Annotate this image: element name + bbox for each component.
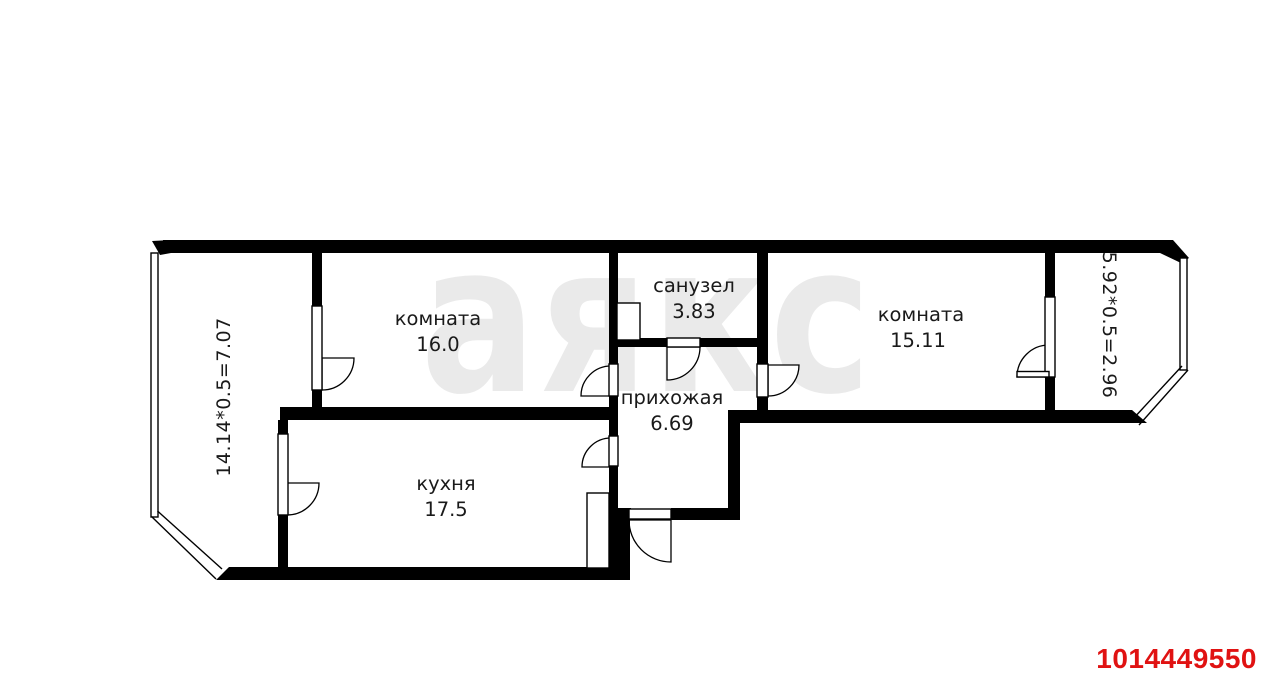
wall-bathroom-east-upper [757,253,768,364]
door-arc-entry [629,520,671,562]
balcony-left-diagonal-inner [158,511,223,569]
wall-room2-east-upper [1045,253,1055,298]
door-leaf-hallway-room2 [757,364,768,397]
wall-room2-bottom [728,410,1132,423]
wall-hallway-west-lower [609,466,618,580]
kitchen-shaft [587,493,609,568]
label-room1-area: 16.0 [416,333,459,356]
wall-room1-left-upper [312,253,322,306]
wall-bathroom-bottom-right [700,338,757,347]
label-hallway-area: 6.69 [650,412,693,435]
balcony-right-wall [1180,258,1187,370]
wall-kitchen-bottom [216,567,630,580]
wall-hallway-east [728,410,740,520]
floor-plan-page: аякс [0,0,1280,677]
door-arc-hallway-kitchen [582,438,611,467]
label-room2-area: 15.11 [890,329,946,352]
wall-hallway-west-mid [609,396,618,437]
label-balcony-left-dimensions: 14.14*0.5=7.07 [213,317,235,476]
balcony-left-diagonal-outer [152,517,217,580]
wall-kitchen-left-upper [278,420,288,434]
bathroom-vent-shaft [617,303,640,340]
wall-room1-kitchen [280,407,618,420]
label-bathroom-area: 3.83 [672,300,715,323]
door-leaf-hallway-kitchen [609,436,618,466]
label-hallway-name: прихожая [621,386,724,409]
wall-room1-left-lower [312,390,322,408]
balcony-right-diagonal-inner [1132,366,1182,420]
wall-hallway-kitchen-connector [618,520,630,580]
label-kitchen-name: кухня [416,472,475,495]
door-swings [287,345,1049,562]
door-arc-room1-balcony [322,358,354,390]
label-kitchen-area: 17.5 [424,498,467,521]
label-bathroom-name: санузел [653,274,735,297]
door-leaf-hallway-room1 [609,364,618,396]
label-room1-name: комната [395,307,481,330]
wall-top [163,240,1165,253]
wall-hallway-bottom-right [671,508,740,520]
wall-kitchen-left-lower [278,515,288,568]
wall-room2-east-lower [1045,377,1055,410]
balcony-left-wall [151,253,158,517]
room-labels: комната 16.0 санузел 3.83 комната 15.11 … [213,252,1120,521]
window-room2-balcony [1045,297,1055,377]
balcony-right-diagonal-outer [1139,370,1188,425]
label-room2-name: комната [878,303,964,326]
door-leaf-bathroom [667,338,700,347]
door-leaf-room2-balcony-open [1017,372,1049,378]
window-kitchen-balcony [278,434,288,515]
label-balcony-right-dimensions: 5.92*0.5=2.96 [1098,252,1120,399]
floor-plan-drawing: аякс [0,0,1280,677]
listing-id: 1014449550 [1096,643,1257,674]
window-room1-balcony [312,306,322,390]
door-arc-kitchen-balcony [287,483,319,515]
door-leaf-entry [629,509,671,519]
